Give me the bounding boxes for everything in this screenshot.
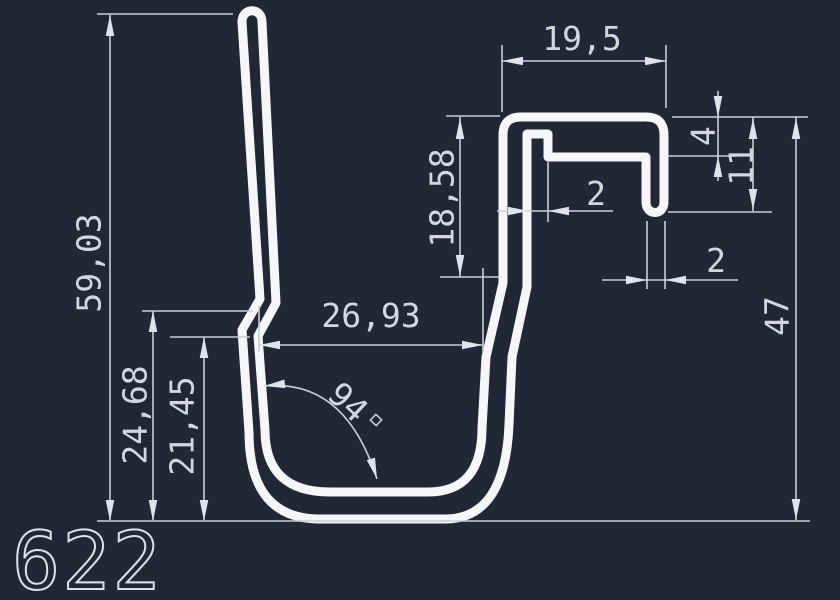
dimension-text: 2 [706,241,726,280]
cad-canvas[interactable]: 59,03 24,68 21,45 26,93 94 [0,0,840,600]
dimension-arrow [749,118,758,139]
part-number-label: 622 [12,515,163,600]
dimension-arrow [749,189,758,210]
dimension-text: 47 [758,296,797,336]
dimension-text: 11 [722,146,761,186]
dimension-text: 4 [684,126,723,146]
dimension-arrow [502,57,523,66]
dimension-arrow [665,276,686,285]
dim-channel-depth: 18,58 [423,116,500,277]
dimension-arrow [367,458,381,481]
dim-channel-wall: 2 [497,162,613,222]
dimension-arrow [548,207,569,216]
dim-bottom-angle: 94 [264,374,382,480]
dimension-arrow [149,311,158,332]
dimension-text: 2 [586,174,606,213]
dimension-arrow [714,96,723,117]
profile-outline-622 [242,11,664,519]
dimension-arrow [792,499,801,520]
dim-hook-wall: 2 [602,221,738,289]
dim-opening-width: 26,93 [259,268,483,352]
dimension-arrow [264,380,286,391]
dimension-text: 21,45 [163,376,202,475]
dimension-arrow [200,337,209,358]
dim-right-height: 47 [758,117,801,520]
dimension-arrow [106,15,115,36]
dimension-arrow [456,118,465,139]
dimension-text: 19,5 [542,19,621,58]
degree-symbol [370,414,381,425]
dimension-text: 94 [320,374,376,430]
dimension-arrow [462,341,483,350]
dimension-arrow [456,255,465,276]
dimension-arrow [200,500,209,521]
dimension-arrow [792,118,801,139]
dimension-text: 59,03 [70,213,109,312]
dimension-arrow [626,276,647,285]
dimension-arrow [645,57,666,66]
dimension-text: 26,93 [321,296,420,335]
dim-top-width: 19,5 [502,19,666,112]
dim-leg-height-inner: 21,45 [163,337,250,521]
dimension-text: 24,68 [116,365,155,464]
cad-viewport[interactable]: 59,03 24,68 21,45 26,93 94 [0,0,840,600]
dimension-text: 18,58 [423,148,462,247]
